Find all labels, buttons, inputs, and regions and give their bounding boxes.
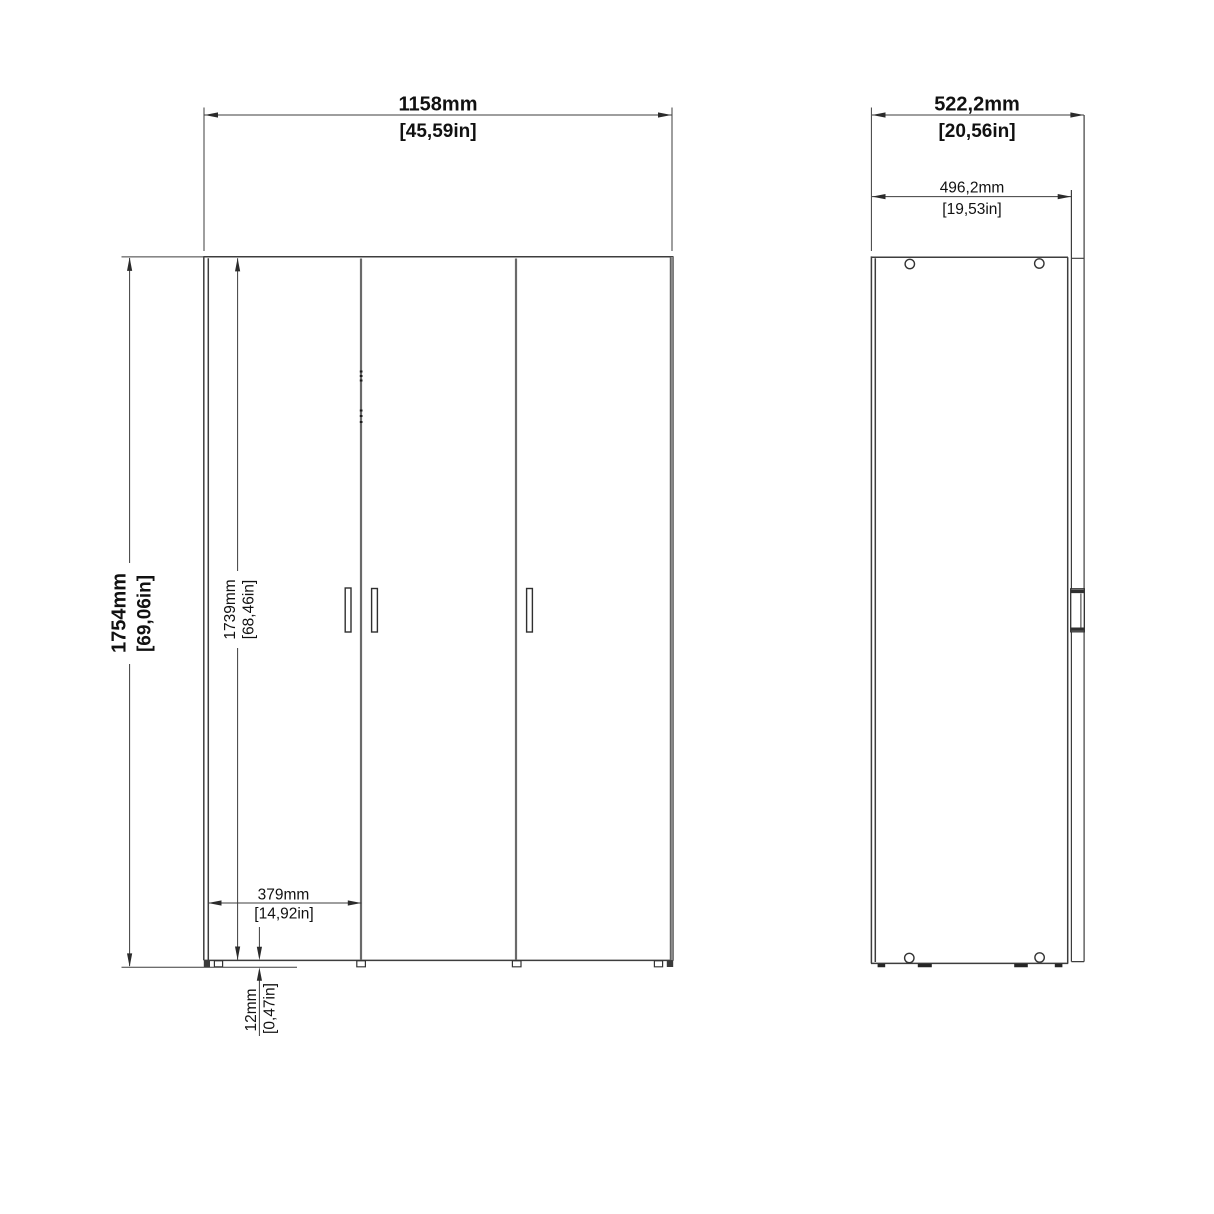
front-corner-feet bbox=[204, 961, 673, 967]
plinth-mm-label: 12mm bbox=[243, 988, 260, 1031]
dim-side-body-depth: 496,2mm [19,53in] bbox=[872, 180, 1071, 219]
plinth-in-label: [0,47in] bbox=[261, 983, 278, 1034]
side-view bbox=[871, 115, 1084, 967]
door-width-in-label: [14,92in] bbox=[254, 906, 313, 923]
side-door-panel bbox=[1071, 115, 1084, 962]
cam-hole-top-left bbox=[905, 259, 914, 268]
cam-hole-bottom-right bbox=[1035, 953, 1044, 962]
dim-plinth-height: 12mm [0,47in] bbox=[243, 927, 278, 1036]
dim-front-height: 1754mm [69,06in] bbox=[109, 257, 298, 967]
dim-door-width: 379mm [14,92in] bbox=[208, 887, 361, 923]
drawing-canvas: 1158mm [45,59in] 1754mm [69,06in] 1739mm… bbox=[0, 0, 1214, 1214]
door-width-mm-label: 379mm bbox=[258, 887, 310, 904]
dim-plinth-arrows bbox=[257, 947, 262, 981]
front-width-mm-label: 1158mm bbox=[399, 94, 478, 116]
door-divider-lines bbox=[361, 259, 516, 960]
front-body-outline bbox=[203, 256, 673, 960]
door-height-in-label: [68,46in] bbox=[241, 580, 258, 639]
dim-side-depth: 522,2mm [20,56in] bbox=[871, 94, 1084, 252]
door-height-mm-label: 1739mm bbox=[222, 579, 239, 639]
dim-front-width: 1158mm [45,59in] bbox=[204, 94, 672, 252]
left-door-handle-icon bbox=[345, 588, 351, 632]
front-view bbox=[203, 256, 673, 967]
side-door-handle-icon bbox=[1071, 589, 1085, 632]
side-body-depth-in-label: [19,53in] bbox=[942, 201, 1001, 218]
side-feet bbox=[878, 964, 1063, 967]
cam-hole-bottom-left bbox=[905, 953, 914, 962]
side-depth-in-label: [20,56in] bbox=[938, 121, 1015, 142]
technical-drawing-page: 1158mm [45,59in] 1754mm [69,06in] 1739mm… bbox=[0, 0, 1214, 1214]
front-width-in-label: [45,59in] bbox=[399, 121, 476, 142]
front-feet bbox=[214, 961, 662, 967]
cam-hole-top-right bbox=[1035, 259, 1044, 268]
side-body-depth-mm-label: 496,2mm bbox=[940, 180, 1005, 197]
side-depth-mm-label: 522,2mm bbox=[934, 94, 1020, 116]
front-height-mm-label: 1754mm bbox=[109, 573, 131, 653]
dim-door-height: 1739mm [68,46in] bbox=[222, 258, 258, 960]
front-height-in-label: [69,06in] bbox=[135, 575, 156, 652]
front-right-edge-panel bbox=[670, 257, 673, 961]
middle-door-handle-icon bbox=[372, 589, 378, 633]
right-door-handle-icon bbox=[527, 589, 533, 633]
side-body-outline bbox=[871, 256, 1068, 963]
